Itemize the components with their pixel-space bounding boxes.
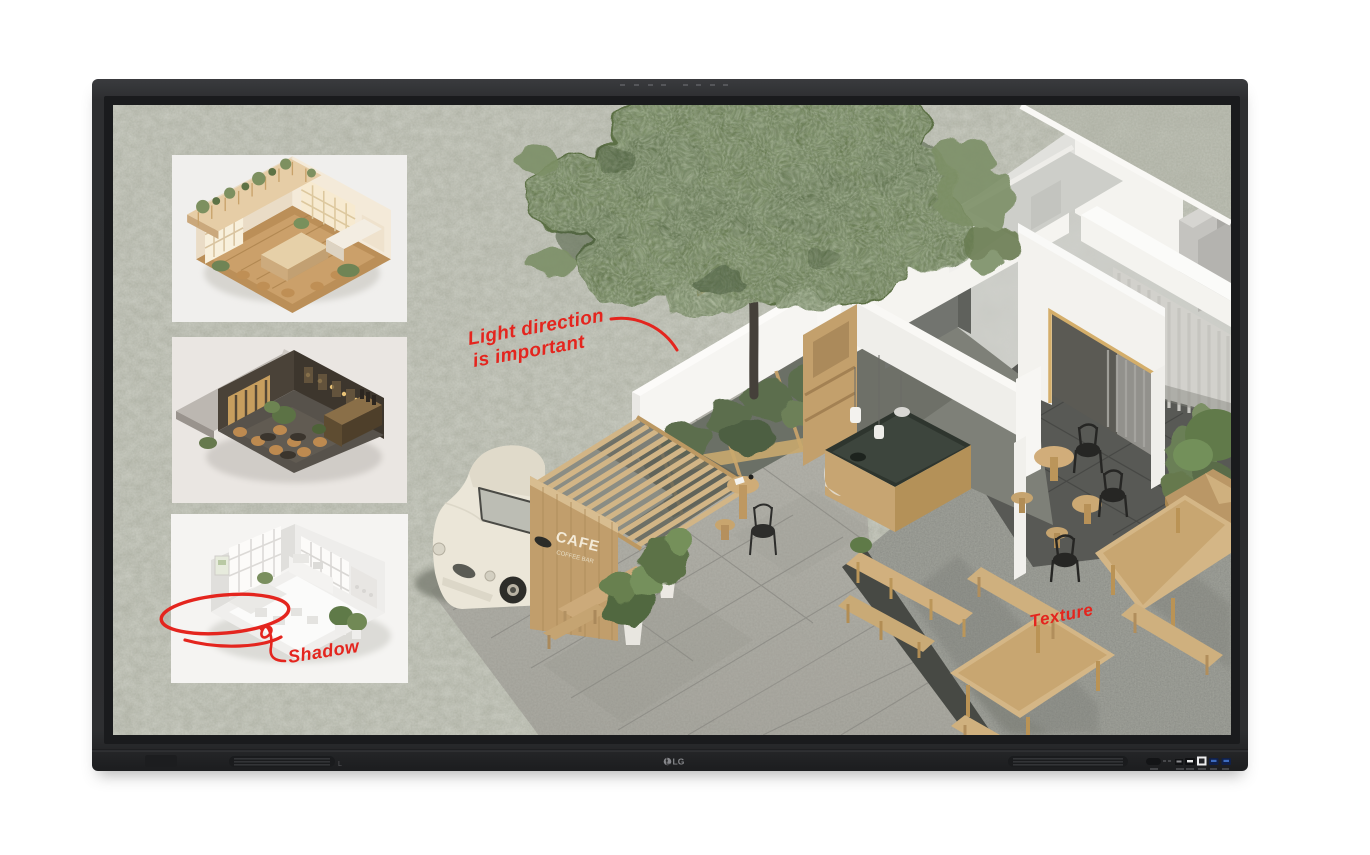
svg-text:L: L	[338, 761, 342, 768]
svg-text:LG: LG	[673, 757, 685, 767]
